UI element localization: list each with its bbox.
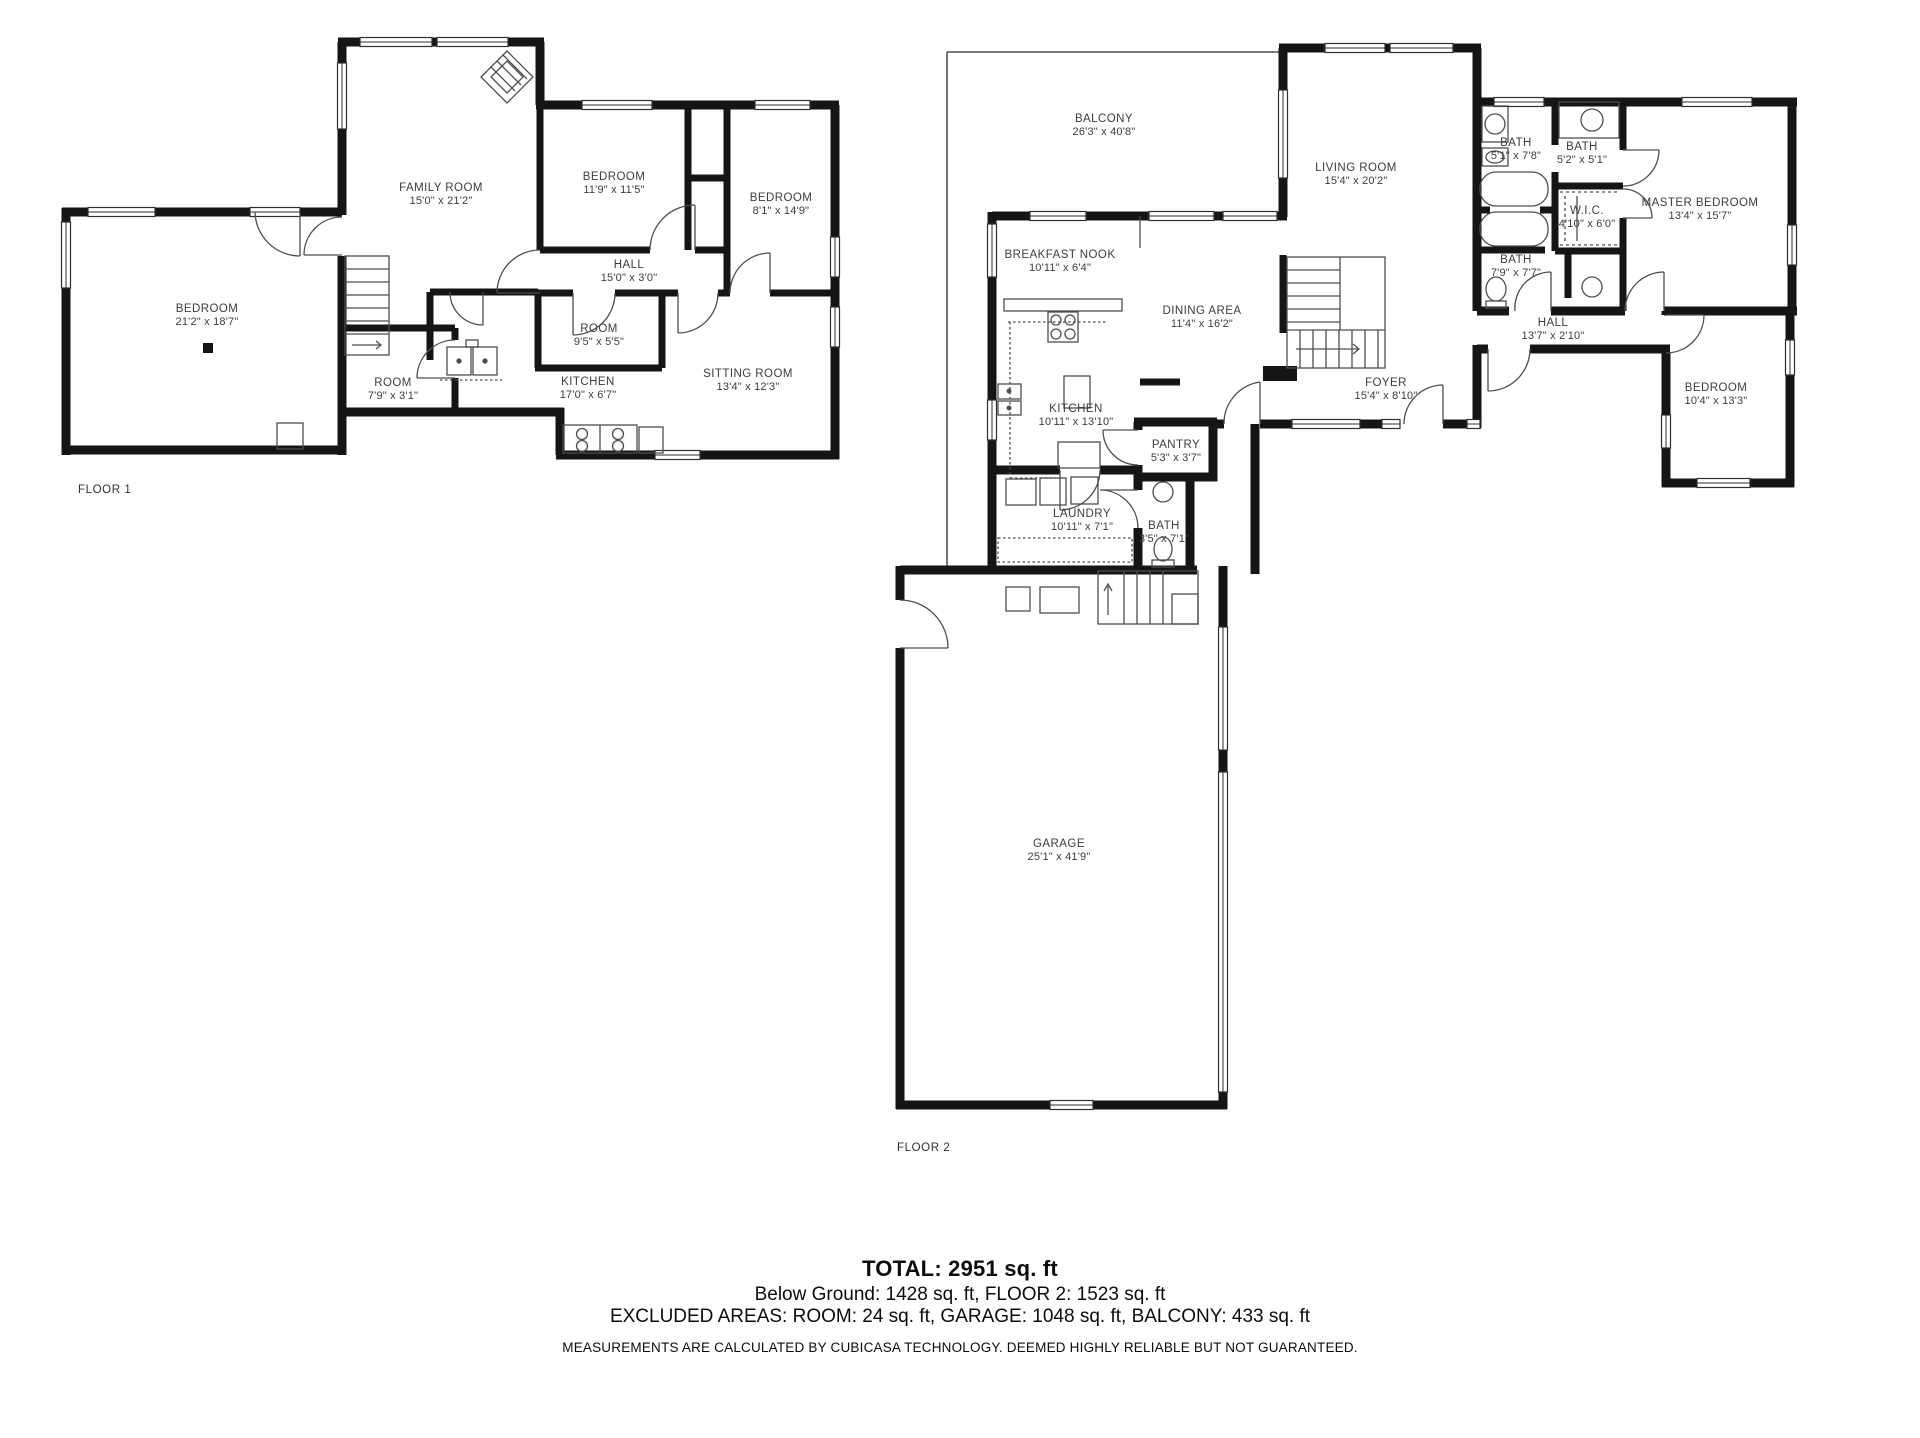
room-name: MASTER BEDROOM bbox=[1642, 196, 1759, 210]
room-label-f2-bedroom: BEDROOM 10'4" x 13'3" bbox=[1685, 381, 1748, 409]
room-name: HALL bbox=[601, 258, 658, 272]
room-label-f1-room-side: ROOM 7'9" x 3'1" bbox=[368, 376, 418, 404]
room-label-f2-master-bedroom: MASTER BEDROOM 13'4" x 15'7" bbox=[1642, 196, 1759, 224]
room-dims: 9'5" x 5'5" bbox=[574, 336, 624, 350]
room-dims: 10'11" x 6'4" bbox=[1005, 262, 1116, 276]
room-label-f2-bath-4: BATH 3'5" x 7'1" bbox=[1139, 519, 1189, 547]
floorplan-drawing bbox=[0, 0, 1920, 1438]
room-dims: 11'4" x 16'2" bbox=[1162, 318, 1241, 332]
room-dims: 15'4" x 20'2" bbox=[1315, 175, 1397, 189]
room-name: ROOM bbox=[574, 322, 624, 336]
room-name: KITCHEN bbox=[1039, 402, 1114, 416]
room-dims: 3'5" x 7'1" bbox=[1139, 533, 1189, 547]
room-dims: 17'0" x 6'7" bbox=[560, 389, 617, 403]
room-dims: 10'11" x 7'1" bbox=[1051, 521, 1113, 535]
room-dims: 15'4" x 8'10" bbox=[1355, 390, 1418, 404]
room-label-f2-kitchen: KITCHEN 10'11" x 13'10" bbox=[1039, 402, 1114, 430]
room-name: BALCONY bbox=[1073, 112, 1136, 126]
room-name: BREAKFAST NOOK bbox=[1005, 248, 1116, 262]
room-dims: 13'7" x 2'10" bbox=[1522, 330, 1585, 344]
room-label-f1-kitchen: KITCHEN 17'0" x 6'7" bbox=[560, 375, 617, 403]
room-dims: 25'1" x 41'9" bbox=[1028, 851, 1091, 865]
room-name: BATH bbox=[1557, 140, 1607, 154]
floor1-tag: FLOOR 1 bbox=[78, 484, 131, 496]
room-name: BATH bbox=[1139, 519, 1189, 533]
room-dims: 5'2" x 5'1" bbox=[1557, 154, 1607, 168]
room-label-f1-bedroom-main: BEDROOM 21'2" x 18'7" bbox=[176, 302, 239, 330]
room-name: BEDROOM bbox=[750, 191, 813, 205]
room-name: W.I.C. bbox=[1559, 204, 1616, 218]
room-dims: 15'0" x 21'2" bbox=[399, 195, 483, 209]
room-dims: 13'4" x 12'3" bbox=[703, 381, 793, 395]
floor1-stairs bbox=[345, 256, 389, 355]
room-dims: 13'4" x 15'7" bbox=[1642, 210, 1759, 224]
room-name: PANTRY bbox=[1151, 438, 1201, 452]
floor1-interior-walls bbox=[339, 105, 839, 412]
room-label-f2-hall: HALL 13'7" x 2'10" bbox=[1522, 316, 1585, 344]
room-name: BEDROOM bbox=[1685, 381, 1748, 395]
room-label-f2-foyer: FOYER 15'4" x 8'10" bbox=[1355, 376, 1418, 404]
summary-breakdown: Below Ground: 1428 sq. ft, FLOOR 2: 1523… bbox=[0, 1284, 1920, 1306]
room-name: BATH bbox=[1491, 136, 1541, 150]
room-name: BEDROOM bbox=[176, 302, 239, 316]
room-label-f1-family-room: FAMILY ROOM 15'0" x 21'2" bbox=[399, 181, 483, 209]
room-label-f2-living-room: LIVING ROOM 15'4" x 20'2" bbox=[1315, 161, 1397, 189]
room-name: HALL bbox=[1522, 316, 1585, 330]
room-name: KITCHEN bbox=[560, 375, 617, 389]
room-label-f1-bedroom-3: BEDROOM 8'1" x 14'9" bbox=[750, 191, 813, 219]
summary-excluded-areas: EXCLUDED AREAS: ROOM: 24 sq. ft, GARAGE:… bbox=[0, 1306, 1920, 1328]
summary-total: TOTAL: 2951 sq. ft bbox=[0, 1256, 1920, 1282]
room-dims: 7'9" x 3'1" bbox=[368, 390, 418, 404]
room-label-f2-wic: W.I.C. 4'10" x 6'0" bbox=[1559, 204, 1616, 232]
room-label-f2-pantry: PANTRY 5'3" x 3'7" bbox=[1151, 438, 1201, 466]
room-label-f2-bath-1: BATH 5'1" x 7'8" bbox=[1491, 136, 1541, 164]
floor2-main-stairs bbox=[1287, 257, 1385, 368]
room-label-f1-hall: HALL 15'0" x 3'0" bbox=[601, 258, 658, 286]
room-dims: 8'1" x 14'9" bbox=[750, 205, 813, 219]
room-dims: 7'9" x 7'7" bbox=[1491, 267, 1541, 281]
floor2-garage-stairs bbox=[1098, 571, 1198, 624]
room-name: ROOM bbox=[368, 376, 418, 390]
room-label-f2-breakfast-nook: BREAKFAST NOOK 10'11" x 6'4" bbox=[1005, 248, 1116, 276]
floorplan-page: BEDROOM 21'2" x 18'7" FAMILY ROOM 15'0" … bbox=[0, 0, 1920, 1438]
floor2-garage-fixtures bbox=[1006, 587, 1079, 613]
floor2-tag: FLOOR 2 bbox=[897, 1142, 950, 1154]
room-dims: 11'9" x 11'5" bbox=[583, 184, 646, 198]
room-label-f2-garage: GARAGE 25'1" x 41'9" bbox=[1028, 837, 1091, 865]
room-dims: 26'3" x 40'8" bbox=[1073, 126, 1136, 140]
room-label-f2-bath-2: BATH 5'2" x 5'1" bbox=[1557, 140, 1607, 168]
room-name: LIVING ROOM bbox=[1315, 161, 1397, 175]
room-name: BATH bbox=[1491, 253, 1541, 267]
room-label-f1-room-small: ROOM 9'5" x 5'5" bbox=[574, 322, 624, 350]
room-dims: 15'0" x 3'0" bbox=[601, 272, 658, 286]
room-label-f1-sitting-room: SITTING ROOM 13'4" x 12'3" bbox=[703, 367, 793, 395]
summary-disclaimer: MEASUREMENTS ARE CALCULATED BY CUBICASA … bbox=[0, 1340, 1920, 1355]
room-label-f2-bath-3: BATH 7'9" x 7'7" bbox=[1491, 253, 1541, 281]
room-dims: 10'11" x 13'10" bbox=[1039, 416, 1114, 430]
room-label-f2-dining-area: DINING AREA 11'4" x 16'2" bbox=[1162, 304, 1241, 332]
room-label-f2-laundry: LAUNDRY 10'11" x 7'1" bbox=[1051, 507, 1113, 535]
room-dims: 5'1" x 7'8" bbox=[1491, 150, 1541, 164]
room-dims: 10'4" x 13'3" bbox=[1685, 395, 1748, 409]
room-dims: 21'2" x 18'7" bbox=[176, 316, 239, 330]
room-name: BEDROOM bbox=[583, 170, 646, 184]
room-label-f2-balcony: BALCONY 26'3" x 40'8" bbox=[1073, 112, 1136, 140]
room-dims: 5'3" x 3'7" bbox=[1151, 452, 1201, 466]
room-name: GARAGE bbox=[1028, 837, 1091, 851]
room-name: LAUNDRY bbox=[1051, 507, 1113, 521]
room-name: DINING AREA bbox=[1162, 304, 1241, 318]
room-name: FOYER bbox=[1355, 376, 1418, 390]
room-label-f1-bedroom-2: BEDROOM 11'9" x 11'5" bbox=[583, 170, 646, 198]
room-name: FAMILY ROOM bbox=[399, 181, 483, 195]
room-name: SITTING ROOM bbox=[703, 367, 793, 381]
room-dims: 4'10" x 6'0" bbox=[1559, 218, 1616, 232]
